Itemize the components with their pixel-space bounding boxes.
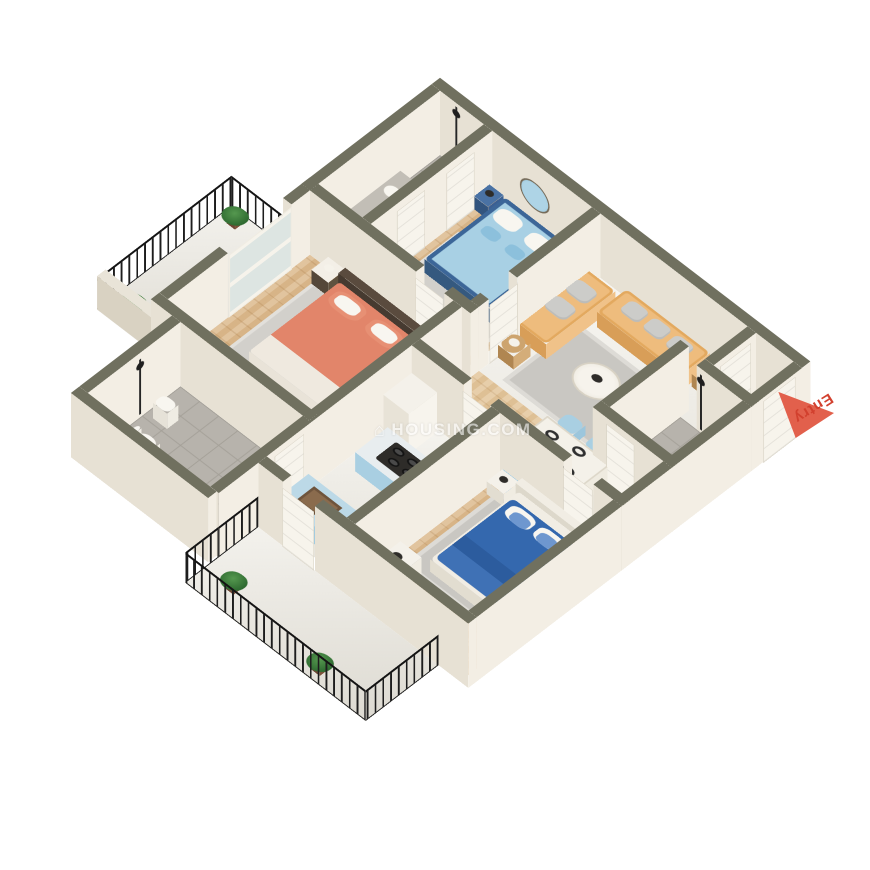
wall-teal-se-b — [479, 299, 489, 371]
shower-bath-left — [133, 354, 147, 420]
shower-bath-right — [694, 369, 708, 435]
floorplan-stage: ⌂ HOUSING.COM Entry — [0, 0, 870, 870]
wall-y172-c — [672, 461, 680, 532]
wall-y60 — [751, 401, 759, 472]
wall-y243-c — [622, 500, 630, 571]
floorplan-3d — [44, 155, 794, 729]
wall-y172-b — [470, 307, 478, 378]
wall-sw-b — [468, 617, 476, 688]
